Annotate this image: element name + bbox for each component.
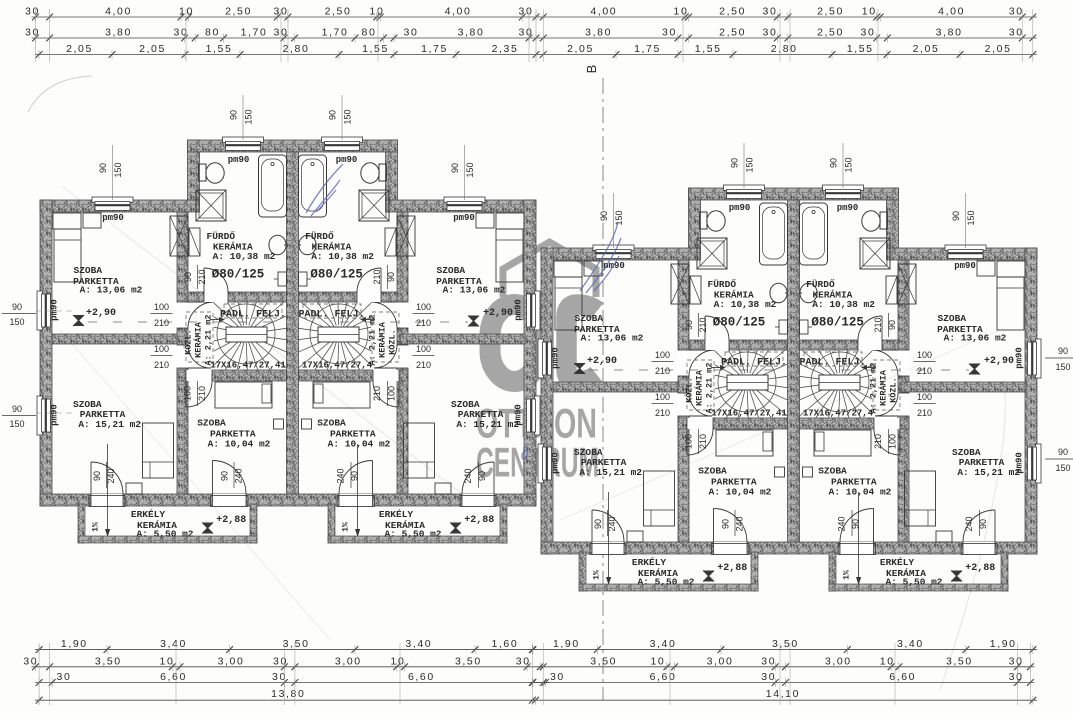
svg-text:A: 10,04 m2: A: 10,04 m2 — [208, 439, 271, 450]
svg-text:1,55: 1,55 — [362, 43, 389, 55]
svg-text:30: 30 — [1009, 655, 1024, 667]
svg-text:1,70: 1,70 — [241, 27, 268, 39]
svg-text:30: 30 — [763, 27, 778, 39]
svg-text:2,35: 2,35 — [492, 43, 519, 55]
svg-text:210: 210 — [197, 269, 207, 284]
svg-text:pm90: pm90 — [336, 155, 358, 165]
svg-text:4,00: 4,00 — [445, 6, 472, 18]
svg-text:Ø80/125: Ø80/125 — [310, 267, 363, 281]
svg-text:30: 30 — [23, 655, 38, 667]
svg-text:2,50: 2,50 — [225, 6, 252, 18]
svg-text:Ø80/125: Ø80/125 — [212, 267, 265, 281]
svg-text:KERÁMIA: KERÁMIA — [377, 321, 388, 358]
svg-text:A: 10,04 m2: A: 10,04 m2 — [829, 487, 892, 498]
svg-text:30: 30 — [57, 671, 72, 683]
svg-text:pm90: pm90 — [228, 155, 250, 165]
svg-text:240: 240 — [607, 516, 617, 531]
svg-text:80: 80 — [205, 27, 220, 39]
svg-text:90: 90 — [12, 302, 22, 312]
svg-text:210: 210 — [416, 318, 431, 328]
svg-text:1%: 1% — [92, 522, 101, 532]
svg-text:210: 210 — [917, 366, 932, 376]
svg-text:240: 240 — [837, 516, 847, 531]
svg-text:1,70: 1,70 — [322, 27, 349, 39]
svg-text:A: 10,38 m2: A: 10,38 m2 — [311, 251, 374, 262]
svg-text:2,50: 2,50 — [817, 27, 844, 39]
svg-text:PADL. FELJ.: PADL. FELJ. — [220, 310, 286, 321]
svg-text:6,60: 6,60 — [408, 671, 435, 683]
svg-text:210: 210 — [197, 386, 207, 401]
svg-text:+2,88: +2,88 — [717, 563, 747, 574]
svg-text:30: 30 — [404, 27, 419, 39]
svg-text:pm90: pm90 — [102, 213, 124, 223]
svg-text:30: 30 — [25, 27, 40, 39]
svg-text:30: 30 — [861, 27, 876, 39]
svg-text:1,90: 1,90 — [553, 638, 580, 650]
svg-text:90: 90 — [951, 211, 961, 221]
svg-text:A: 10,38 m2: A: 10,38 m2 — [714, 299, 777, 310]
svg-text:1,90: 1,90 — [61, 638, 88, 650]
svg-text:30: 30 — [519, 6, 534, 18]
svg-text:3,80: 3,80 — [585, 27, 612, 39]
svg-text:30: 30 — [272, 671, 287, 683]
svg-text:2,50: 2,50 — [817, 6, 844, 18]
svg-text:1,55: 1,55 — [847, 43, 874, 55]
svg-text:150: 150 — [244, 109, 254, 124]
svg-text:pm90: pm90 — [729, 203, 751, 213]
svg-text:A: 5,50 m2: A: 5,50 m2 — [384, 529, 441, 540]
svg-text:KERÁMIA: KERÁMIA — [694, 369, 705, 406]
svg-text:1%: 1% — [342, 522, 351, 532]
svg-text:210: 210 — [873, 317, 883, 332]
svg-text:KÖZL.: KÖZL. — [684, 377, 695, 403]
svg-text:pm90: pm90 — [550, 347, 560, 369]
svg-text:KÖZL.: KÖZL. — [387, 329, 398, 355]
svg-text:30: 30 — [1009, 671, 1024, 683]
svg-text:pm90: pm90 — [49, 299, 59, 321]
svg-text:SZOBA: SZOBA — [317, 418, 346, 429]
svg-text:2,05: 2,05 — [567, 43, 594, 55]
svg-text:90: 90 — [450, 163, 460, 173]
svg-text:ERKÉLY: ERKÉLY — [379, 509, 414, 520]
svg-text:2,50: 2,50 — [719, 27, 746, 39]
svg-text:FÜRDŐ: FÜRDŐ — [806, 278, 835, 290]
svg-text:A: 13,06 m2: A: 13,06 m2 — [80, 285, 143, 296]
svg-text:SZOBA: SZOBA — [575, 313, 604, 324]
svg-text:10: 10 — [179, 6, 194, 18]
svg-text:10: 10 — [674, 6, 689, 18]
svg-text:210: 210 — [655, 408, 670, 418]
svg-text:FÜRDŐ: FÜRDŐ — [207, 230, 236, 242]
svg-text:17X16,47/27,4: 17X16,47/27,4 — [803, 409, 874, 419]
svg-text:150: 150 — [343, 109, 353, 124]
svg-text:3,80: 3,80 — [936, 27, 963, 39]
svg-text:90: 90 — [12, 404, 22, 414]
svg-text:+2,90: +2,90 — [587, 356, 617, 367]
svg-text:90: 90 — [92, 471, 102, 481]
svg-text:3,50: 3,50 — [283, 638, 310, 650]
svg-text:A: 15,21 m2: A: 15,21 m2 — [78, 419, 141, 430]
svg-text:KERÁMIA: KERÁMIA — [193, 321, 204, 358]
svg-text:150: 150 — [745, 157, 755, 172]
svg-text:90: 90 — [98, 163, 108, 173]
svg-text:2,05: 2,05 — [985, 43, 1012, 55]
svg-text:ERKÉLY: ERKÉLY — [880, 557, 915, 568]
svg-text:10: 10 — [880, 655, 895, 667]
svg-text:pm90: pm90 — [49, 404, 59, 426]
svg-text:150: 150 — [1055, 463, 1070, 473]
svg-text:A: 10,38 m2: A: 10,38 m2 — [213, 251, 276, 262]
svg-text:SZOBA: SZOBA — [74, 265, 103, 276]
svg-text:100: 100 — [655, 392, 670, 402]
svg-text:90: 90 — [730, 158, 740, 168]
svg-text:A: 5,50 m2: A: 5,50 m2 — [136, 529, 193, 540]
svg-text:SZOBA: SZOBA — [437, 265, 466, 276]
svg-text:13,80: 13,80 — [271, 688, 305, 700]
svg-text:A: 10,38 m2: A: 10,38 m2 — [812, 299, 875, 310]
svg-text:3,00: 3,00 — [707, 655, 734, 667]
svg-text:30: 30 — [763, 6, 778, 18]
svg-text:240: 240 — [336, 468, 346, 483]
svg-text:A: 2,21 m2: A: 2,21 m2 — [204, 314, 214, 365]
svg-text:PADL. FELJ.: PADL. FELJ. — [299, 310, 365, 321]
svg-text:30: 30 — [761, 671, 776, 683]
svg-text:1,60: 1,60 — [491, 638, 518, 650]
svg-text:3,80: 3,80 — [458, 27, 485, 39]
svg-text:KERÁMIA: KERÁMIA — [878, 369, 889, 406]
svg-text:80: 80 — [362, 27, 377, 39]
svg-text:A: 10,04 m2: A: 10,04 m2 — [709, 487, 772, 498]
svg-text:30: 30 — [519, 27, 534, 39]
svg-text:150: 150 — [614, 210, 624, 225]
svg-text:A: 13,06 m2: A: 13,06 m2 — [443, 285, 506, 296]
svg-text:3,40: 3,40 — [650, 638, 677, 650]
svg-text:210: 210 — [416, 360, 431, 370]
svg-text:SZOBA: SZOBA — [938, 313, 967, 324]
svg-text:4,00: 4,00 — [105, 6, 132, 18]
svg-text:FÜRDŐ: FÜRDŐ — [305, 230, 334, 242]
svg-text:A: 13,06 m2: A: 13,06 m2 — [944, 333, 1007, 344]
svg-text:6,60: 6,60 — [160, 671, 187, 683]
svg-text:240: 240 — [964, 516, 974, 531]
svg-text:KÖZL.: KÖZL. — [183, 329, 194, 355]
svg-text:90: 90 — [684, 320, 694, 330]
svg-text:1%: 1% — [843, 570, 852, 580]
svg-text:90: 90 — [229, 110, 239, 120]
svg-text:PADL. FELJ.: PADL. FELJ. — [800, 358, 866, 369]
svg-text:30: 30 — [25, 6, 40, 18]
svg-text:ERKÉLY: ERKÉLY — [632, 557, 667, 568]
svg-text:3,40: 3,40 — [160, 638, 187, 650]
svg-text:SZOBA: SZOBA — [818, 466, 847, 477]
svg-text:KÖZL.: KÖZL. — [888, 377, 899, 403]
svg-text:210: 210 — [154, 318, 169, 328]
svg-text:150: 150 — [844, 157, 854, 172]
svg-text:90: 90 — [721, 519, 731, 529]
svg-text:10: 10 — [370, 6, 385, 18]
svg-text:100: 100 — [917, 392, 932, 402]
svg-text:3,40: 3,40 — [897, 638, 924, 650]
svg-text:A: 2,21 m2: A: 2,21 m2 — [705, 362, 715, 413]
svg-text:100: 100 — [387, 386, 397, 401]
svg-text:+2,88: +2,88 — [216, 515, 246, 526]
svg-text:pm90: pm90 — [1015, 347, 1025, 369]
svg-text:150: 150 — [9, 317, 24, 327]
svg-text:A: 5,50 m2: A: 5,50 m2 — [637, 577, 694, 588]
svg-text:A: 13,06 m2: A: 13,06 m2 — [581, 333, 644, 344]
svg-text:100: 100 — [684, 434, 694, 449]
svg-text:30: 30 — [761, 655, 776, 667]
svg-text:1%: 1% — [593, 570, 602, 580]
svg-text:100: 100 — [416, 302, 431, 312]
svg-text:A: 2,21 m2: A: 2,21 m2 — [869, 362, 879, 413]
svg-text:2,80: 2,80 — [771, 43, 798, 55]
svg-text:+2,90: +2,90 — [483, 308, 513, 319]
svg-text:3,50: 3,50 — [772, 638, 799, 650]
svg-text:1,75: 1,75 — [421, 43, 448, 55]
svg-text:210: 210 — [698, 317, 708, 332]
svg-text:30: 30 — [516, 655, 531, 667]
svg-text:90: 90 — [183, 272, 193, 282]
svg-text:3,00: 3,00 — [335, 655, 362, 667]
svg-text:240: 240 — [735, 516, 745, 531]
svg-text:6,60: 6,60 — [650, 671, 677, 683]
svg-text:30: 30 — [1009, 6, 1024, 18]
svg-text:150: 150 — [966, 210, 976, 225]
svg-text:150: 150 — [9, 419, 24, 429]
svg-text:90: 90 — [1058, 447, 1068, 457]
svg-text:SZOBA: SZOBA — [698, 466, 727, 477]
svg-text:240: 240 — [463, 468, 473, 483]
svg-text:10: 10 — [862, 6, 877, 18]
svg-text:3,50: 3,50 — [95, 655, 122, 667]
svg-text:14,10: 14,10 — [766, 688, 800, 700]
svg-text:3,80: 3,80 — [105, 27, 132, 39]
svg-text:2,05: 2,05 — [66, 43, 93, 55]
svg-text:90: 90 — [328, 110, 338, 120]
svg-text:A: 10,04 m2: A: 10,04 m2 — [328, 439, 391, 450]
svg-text:A: 15,21 m2: A: 15,21 m2 — [957, 467, 1020, 478]
svg-text:2,05: 2,05 — [913, 43, 940, 55]
svg-text:17X16,47/27,41: 17X16,47/27,41 — [711, 409, 787, 419]
svg-text:SZOBA: SZOBA — [197, 418, 226, 429]
svg-text:pm90: pm90 — [514, 299, 524, 321]
svg-text:100: 100 — [655, 350, 670, 360]
svg-text:210: 210 — [917, 408, 932, 418]
svg-text:30: 30 — [550, 671, 565, 683]
svg-text:PADL. FELJ.: PADL. FELJ. — [721, 358, 787, 369]
svg-text:3,50: 3,50 — [946, 655, 973, 667]
svg-text:pm90: pm90 — [453, 213, 475, 223]
svg-text:90: 90 — [220, 471, 230, 481]
svg-text:pm90: pm90 — [1015, 452, 1025, 474]
svg-text:1,55: 1,55 — [206, 43, 233, 55]
svg-text:+2,90: +2,90 — [984, 356, 1014, 367]
svg-text:100: 100 — [183, 386, 193, 401]
svg-text:210: 210 — [655, 366, 670, 376]
svg-text:150: 150 — [1055, 362, 1070, 372]
svg-text:3,00: 3,00 — [218, 655, 245, 667]
svg-text:3,50: 3,50 — [590, 655, 617, 667]
svg-text:30: 30 — [273, 655, 288, 667]
svg-text:1,90: 1,90 — [990, 638, 1017, 650]
svg-text:210: 210 — [372, 386, 382, 401]
svg-text:30: 30 — [1009, 27, 1024, 39]
svg-text:2,50: 2,50 — [325, 6, 352, 18]
svg-text:Ø80/125: Ø80/125 — [811, 315, 864, 329]
svg-text:B: B — [584, 65, 599, 74]
svg-text:240: 240 — [106, 468, 116, 483]
svg-text:pm90: pm90 — [837, 203, 859, 213]
svg-text:2,80: 2,80 — [283, 43, 310, 55]
svg-text:100: 100 — [416, 344, 431, 354]
svg-text:3,40: 3,40 — [405, 638, 432, 650]
svg-text:A: 2,21 m2: A: 2,21 m2 — [368, 314, 378, 365]
svg-text:A: 5,50 m2: A: 5,50 m2 — [885, 577, 942, 588]
svg-text:A: 15,21 m2: A: 15,21 m2 — [579, 467, 642, 478]
svg-text:100: 100 — [154, 344, 169, 354]
svg-text:17X16,47/27,41: 17X16,47/27,41 — [210, 361, 286, 371]
svg-text:ERKÉLY: ERKÉLY — [131, 509, 166, 520]
svg-text:3,00: 3,00 — [825, 655, 852, 667]
svg-text:10: 10 — [391, 655, 406, 667]
svg-text:210: 210 — [873, 434, 883, 449]
svg-text:240: 240 — [234, 468, 244, 483]
svg-text:4,00: 4,00 — [938, 6, 965, 18]
svg-text:pm90: pm90 — [514, 404, 524, 426]
svg-text:FÜRDŐ: FÜRDŐ — [708, 278, 737, 290]
svg-text:17X16,47/27,4: 17X16,47/27,4 — [302, 361, 373, 371]
svg-text:Ø80/125: Ø80/125 — [713, 315, 766, 329]
svg-text:A: 15,21 m2: A: 15,21 m2 — [456, 419, 519, 430]
svg-text:pm90: pm90 — [954, 261, 976, 271]
svg-text:4,00: 4,00 — [590, 6, 617, 18]
svg-text:1,75: 1,75 — [634, 43, 661, 55]
svg-text:150: 150 — [113, 162, 123, 177]
svg-text:100: 100 — [154, 302, 169, 312]
svg-text:30: 30 — [662, 27, 677, 39]
svg-text:+2,88: +2,88 — [965, 563, 995, 574]
svg-text:100: 100 — [917, 350, 932, 360]
svg-text:10: 10 — [160, 655, 175, 667]
svg-text:1,55: 1,55 — [695, 43, 722, 55]
svg-text:210: 210 — [154, 360, 169, 370]
svg-text:2,05: 2,05 — [139, 43, 166, 55]
svg-text:2,50: 2,50 — [719, 6, 746, 18]
svg-text:210: 210 — [698, 434, 708, 449]
svg-text:150: 150 — [465, 162, 475, 177]
svg-text:90: 90 — [1058, 346, 1068, 356]
svg-text:+2,88: +2,88 — [464, 515, 494, 526]
svg-text:100: 100 — [888, 434, 898, 449]
svg-text:pm90: pm90 — [550, 452, 560, 474]
svg-text:+2,90: +2,90 — [86, 308, 116, 319]
svg-text:90: 90 — [599, 211, 609, 221]
svg-text:6,60: 6,60 — [889, 671, 916, 683]
svg-text:210: 210 — [372, 269, 382, 284]
svg-text:10: 10 — [650, 655, 665, 667]
svg-text:3,50: 3,50 — [455, 655, 482, 667]
svg-text:90: 90 — [593, 519, 603, 529]
svg-text:90: 90 — [829, 158, 839, 168]
